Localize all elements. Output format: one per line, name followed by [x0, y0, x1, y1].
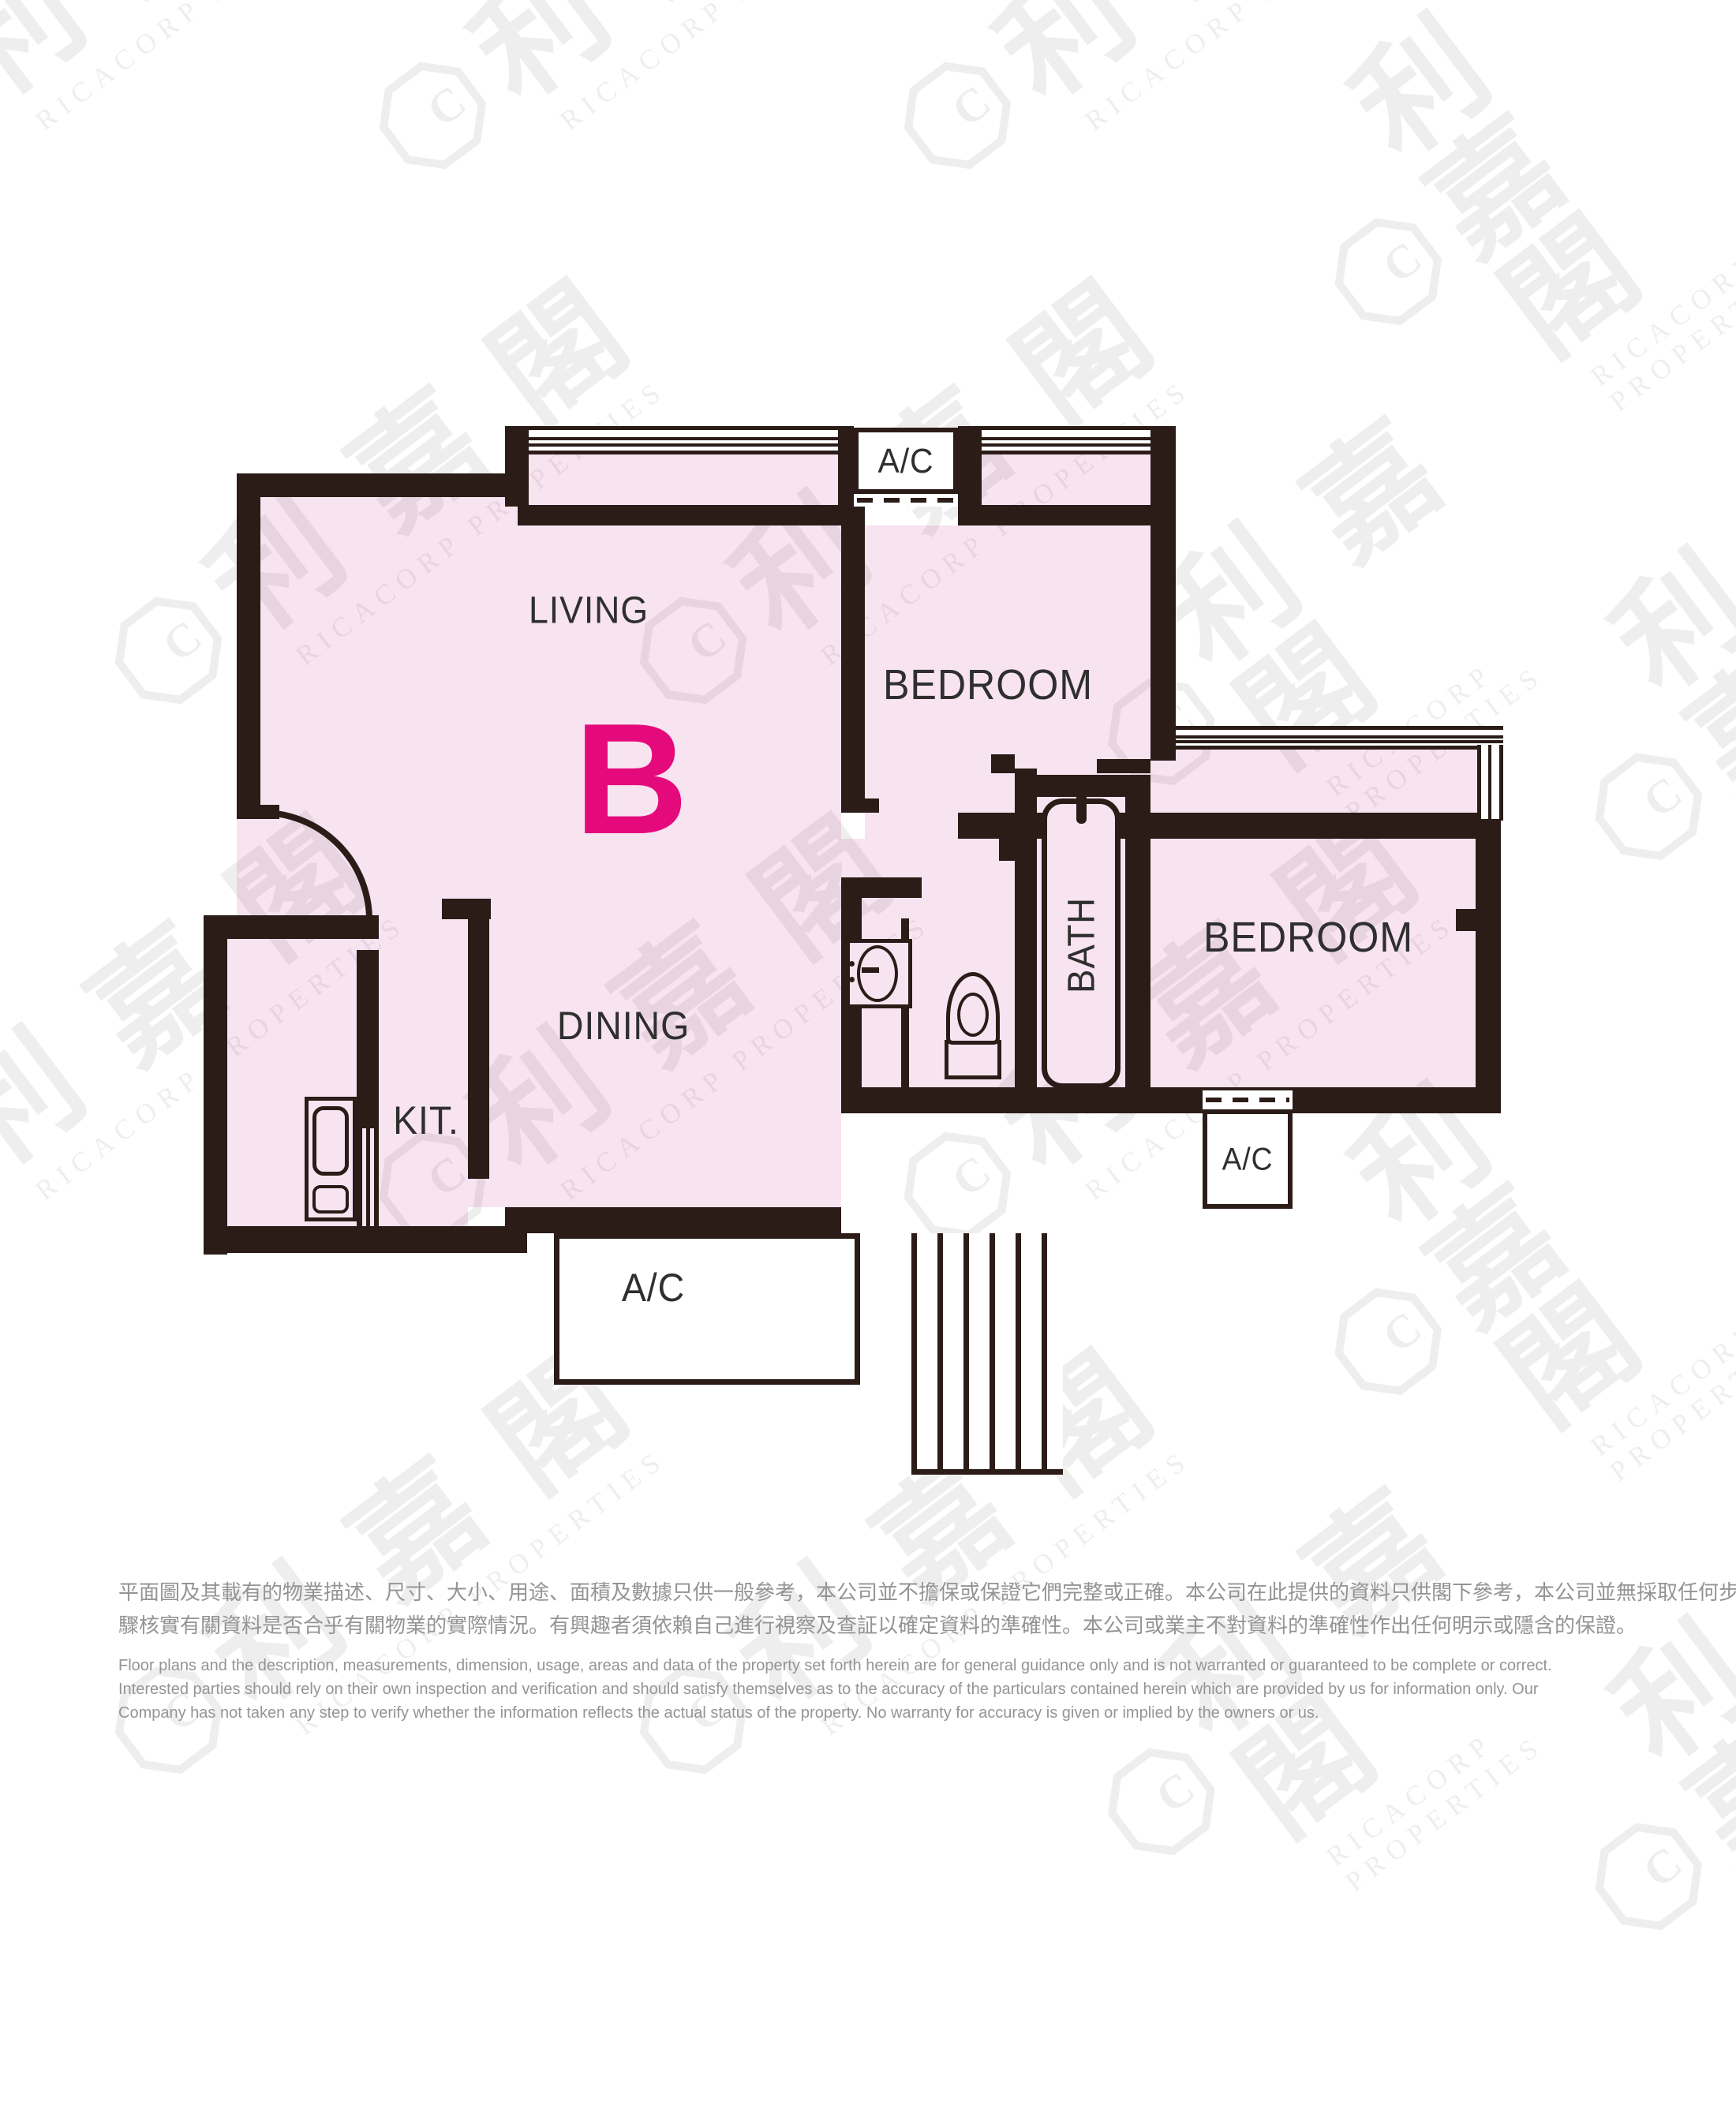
ricacorp-logo-icon: RC: [887, 45, 1028, 186]
wall-lavatory-top: [841, 877, 922, 898]
wall-dining-bottom: [505, 1207, 841, 1233]
pipe-duct-grille: [911, 1233, 1063, 1475]
ac-louvre-top: [854, 494, 958, 507]
window-bedroom-right-corner: [1477, 745, 1503, 821]
page: { "floor_plan": { "unit_letter": "B", "r…: [0, 0, 1736, 1736]
ricacorp-logo-icon: RC: [1578, 736, 1719, 877]
entrance-door-arc: [237, 781, 402, 939]
svg-text:RC: RC: [1578, 1806, 1719, 1947]
wall-bath-right: [1125, 775, 1150, 1095]
washbasin-tap: [862, 967, 879, 973]
wall-kitchen-bottom: [204, 1226, 527, 1253]
bathtub-tap: [1076, 778, 1087, 824]
watermark-cjk-text: 利嘉閣: [0, 0, 428, 121]
room-label-bedroom-right: BEDROOM: [1203, 913, 1413, 962]
ac-label-right: A/C: [1222, 1143, 1274, 1178]
watermark-tile: RC 利嘉閣 RICACORP PROPERTIES: [91, 1307, 713, 1832]
disclaimer-zh-line: 平面圖及其載有的物業描述、尺寸、大小、用途、面積及數據只供一般參考，本公司並不擔…: [118, 1576, 1736, 1606]
svg-text:RC: RC: [98, 580, 239, 721]
watermark-tile: RC 利嘉閣 RICACORP PROPERTIES: [1236, 0, 1736, 508]
watermark-latin-text: RICACORP PROPERTIES: [1321, 1639, 1637, 1898]
kitchen-sink-basin: [312, 1106, 349, 1176]
watermark-latin-text: RICACORP PROPERTIES: [555, 0, 977, 137]
wall-bedroom-top-right: [1150, 426, 1176, 761]
window-bedroom-right-top: [1150, 726, 1503, 750]
wall-bedroom-right-stub: [1456, 909, 1478, 931]
disclaimer-en-line: Floor plans and the description, measure…: [118, 1657, 1552, 1675]
ricacorp-logo-icon: RC: [98, 580, 239, 721]
watermark-cjk-text: 利嘉閣: [455, 0, 953, 121]
watermark-cjk-text: 利嘉閣: [1335, 0, 1736, 376]
room-label-bedroom-top: BEDROOM: [883, 660, 1093, 709]
wall-kitchen-partition: [357, 950, 379, 1128]
wall-living-left: [237, 473, 260, 817]
floor-bay-living: [529, 454, 838, 505]
ricacorp-logo-icon: RC: [1318, 201, 1459, 342]
disclaimer-en-line: Interested parties should rely on their …: [118, 1681, 1538, 1699]
watermark-tile: RC 利嘉閣 RICACORP PROPERTIES: [880, 0, 1502, 227]
wall-kitchen-left: [204, 915, 227, 1255]
room-label-bath: BATH: [1061, 897, 1104, 993]
ac-platform-bottom: [554, 1233, 860, 1385]
wall-bath-left: [1015, 769, 1037, 1095]
window-bay-living: [529, 426, 838, 454]
ricacorp-logo-icon: RC: [1091, 1731, 1232, 1872]
wall-bottom-right: [841, 1087, 1501, 1113]
room-label-dining: DINING: [557, 1003, 690, 1049]
washbasin-bowl: [857, 945, 898, 1002]
wall-bay-sill: [518, 505, 840, 525]
wall-bedroom-top-sill: [982, 505, 1150, 525]
watermark-cjk-text: 利嘉閣: [979, 0, 1478, 121]
watermark-cjk-text: 利嘉閣: [1146, 1434, 1593, 1857]
wall-living-top: [237, 473, 529, 497]
wall-bedroom-right-right: [1476, 819, 1501, 1097]
wall-living-bedroom-divider: [841, 505, 865, 798]
toilet-bowl-inner: [957, 993, 989, 1037]
wall-divider-cap: [841, 798, 879, 813]
watermark-tile: RC 利嘉閣 RICACORP PROPERTIES: [0, 0, 452, 227]
ac-louvre-right: [1203, 1090, 1293, 1109]
wall-bath-cap: [991, 754, 1015, 773]
toilet-cistern: [945, 1040, 1001, 1079]
ricacorp-logo-icon: RC: [362, 45, 503, 186]
svg-text:RC: RC: [887, 45, 1028, 186]
svg-text:RC: RC: [1091, 1731, 1232, 1872]
kitchen-vent: [357, 1128, 379, 1226]
svg-text:RC: RC: [1318, 201, 1459, 342]
ricacorp-logo-icon: RC: [1578, 1806, 1719, 1947]
room-label-kitchen: KIT.: [393, 1098, 459, 1143]
watermark-tile: RC 利嘉閣 RICACORP PROPERTIES: [355, 0, 977, 227]
watermark-tile: RC 利嘉閣 RICACORP PROPERTIES: [1496, 453, 1736, 1043]
wall-bedroom-top-right-cap: [1097, 759, 1150, 773]
ac-label-bottom: A/C: [622, 1265, 685, 1311]
watermark-cjk-text: 利嘉閣: [1146, 364, 1593, 787]
svg-text:RC: RC: [362, 45, 503, 186]
watermark-latin-text: RICACORP PROPERTIES: [1585, 223, 1736, 418]
wall-kitchen-right: [468, 899, 489, 1179]
svg-text:RC: RC: [1318, 1271, 1459, 1412]
wall-ac-post-right: [958, 426, 982, 525]
watermark-latin-text: RICACORP PROPERTIES: [1585, 1293, 1736, 1488]
floor-bay-bedroom-top: [982, 454, 1150, 505]
ac-label-top: A/C: [877, 442, 933, 481]
kitchen-sink-drainer: [312, 1185, 349, 1214]
window-bedroom-top: [982, 426, 1150, 454]
watermark-latin-text: RICACORP PROPERTIES: [1079, 0, 1502, 137]
watermark-cjk-text: 利嘉閣: [1596, 453, 1736, 911]
disclaimer-en-line: Company has not taken any step to verify…: [118, 1704, 1319, 1722]
ricacorp-logo-icon: RC: [1318, 1271, 1459, 1412]
wall-bay-post-left: [505, 426, 529, 507]
washbasin-tap-dot: [849, 977, 855, 982]
room-label-living: LIVING: [529, 589, 649, 633]
unit-letter: B: [574, 689, 688, 870]
wall-bedroom-right-sill: [1154, 813, 1477, 839]
svg-text:RC: RC: [1578, 736, 1719, 877]
disclaimer-zh-line: 驟核實有關資料是否合乎有關物業的實際情況。有興趣者須依賴自己進行視察及查証以確定…: [118, 1610, 1637, 1639]
washbasin-tap-dot: [849, 961, 855, 967]
wall-kitchen-right-cap: [442, 899, 491, 919]
watermark-latin-text: RICACORP PROPERTIES: [30, 0, 452, 137]
